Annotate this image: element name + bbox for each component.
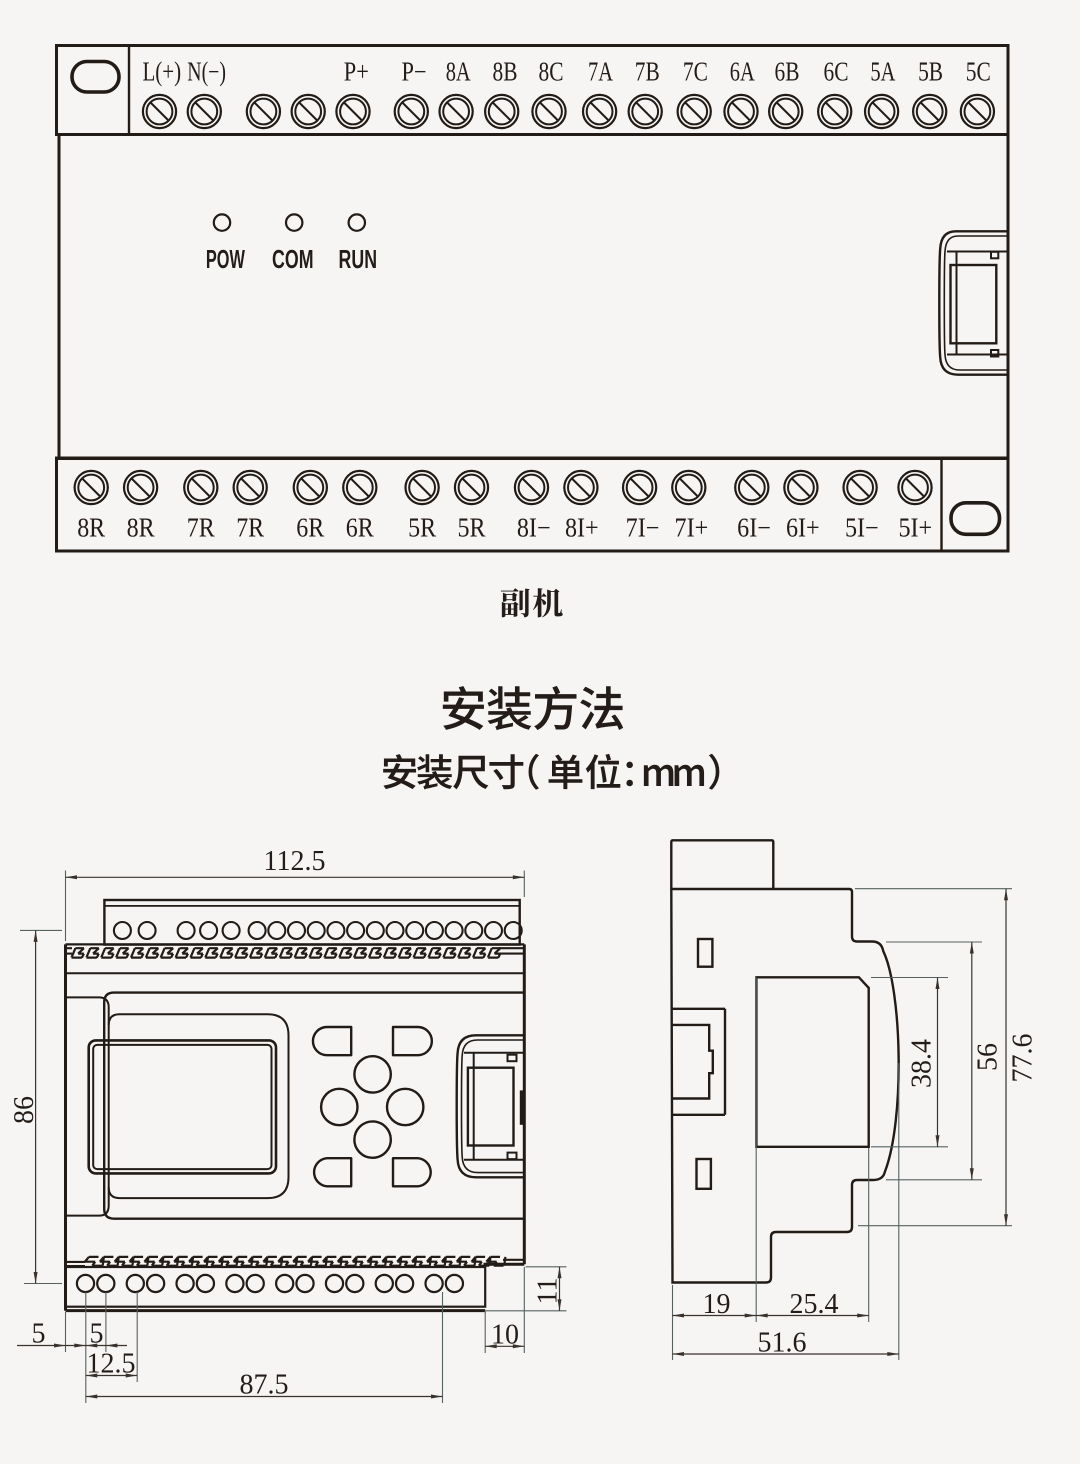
svg-text:51.6: 51.6 [758,1328,807,1359]
svg-text:7R: 7R [187,513,215,543]
svg-text:5C: 5C [966,57,991,87]
svg-text:6I+: 6I+ [786,513,820,543]
svg-text:7I+: 7I+ [675,513,709,543]
svg-text:L(+): L(+) [142,57,181,87]
svg-text:5I−: 5I− [845,513,879,543]
svg-text:11: 11 [533,1278,564,1305]
svg-text:56: 56 [972,1043,1003,1071]
svg-text:8C: 8C [539,57,564,87]
svg-text:POW: POW [206,244,245,274]
svg-text:8R: 8R [127,513,155,543]
svg-text:5B: 5B [918,57,943,87]
svg-text:6B: 6B [775,57,800,87]
svg-text:5R: 5R [408,513,436,543]
svg-text:6C: 6C [824,57,849,87]
svg-text:7C: 7C [683,57,708,87]
svg-text:5: 5 [32,1319,46,1350]
svg-text:6I−: 6I− [737,513,771,543]
svg-text:19: 19 [703,1289,731,1320]
svg-text:N(−): N(−) [187,57,226,87]
svg-text:7A: 7A [588,57,613,87]
svg-text:6A: 6A [730,57,755,87]
svg-text:12.5: 12.5 [87,1349,136,1380]
svg-text:8R: 8R [77,513,105,543]
svg-text:5A: 5A [870,57,895,87]
svg-text:10: 10 [491,1320,519,1351]
svg-text:8A: 8A [446,57,471,87]
svg-text:8I+: 8I+ [565,513,599,543]
svg-text:6R: 6R [296,513,324,543]
svg-text:5: 5 [90,1319,104,1350]
svg-text:86: 86 [9,1096,40,1124]
svg-text:25.4: 25.4 [790,1289,839,1320]
svg-text:RUN: RUN [339,244,378,274]
svg-text:5R: 5R [458,513,486,543]
svg-text:38.4: 38.4 [907,1039,938,1088]
svg-text:P−: P− [402,57,427,87]
svg-text:8I−: 8I− [517,513,551,543]
svg-text:P+: P+ [344,57,369,87]
svg-text:87.5: 87.5 [240,1370,289,1401]
svg-text:6R: 6R [346,513,374,543]
svg-text:7R: 7R [236,513,264,543]
svg-text:8B: 8B [493,57,518,87]
svg-text:7I−: 7I− [626,513,660,543]
svg-text:112.5: 112.5 [264,846,326,877]
svg-text:5I+: 5I+ [898,513,932,543]
svg-text:7B: 7B [635,57,660,87]
svg-text:COM: COM [272,244,314,274]
svg-text:77.6: 77.6 [1008,1034,1039,1083]
